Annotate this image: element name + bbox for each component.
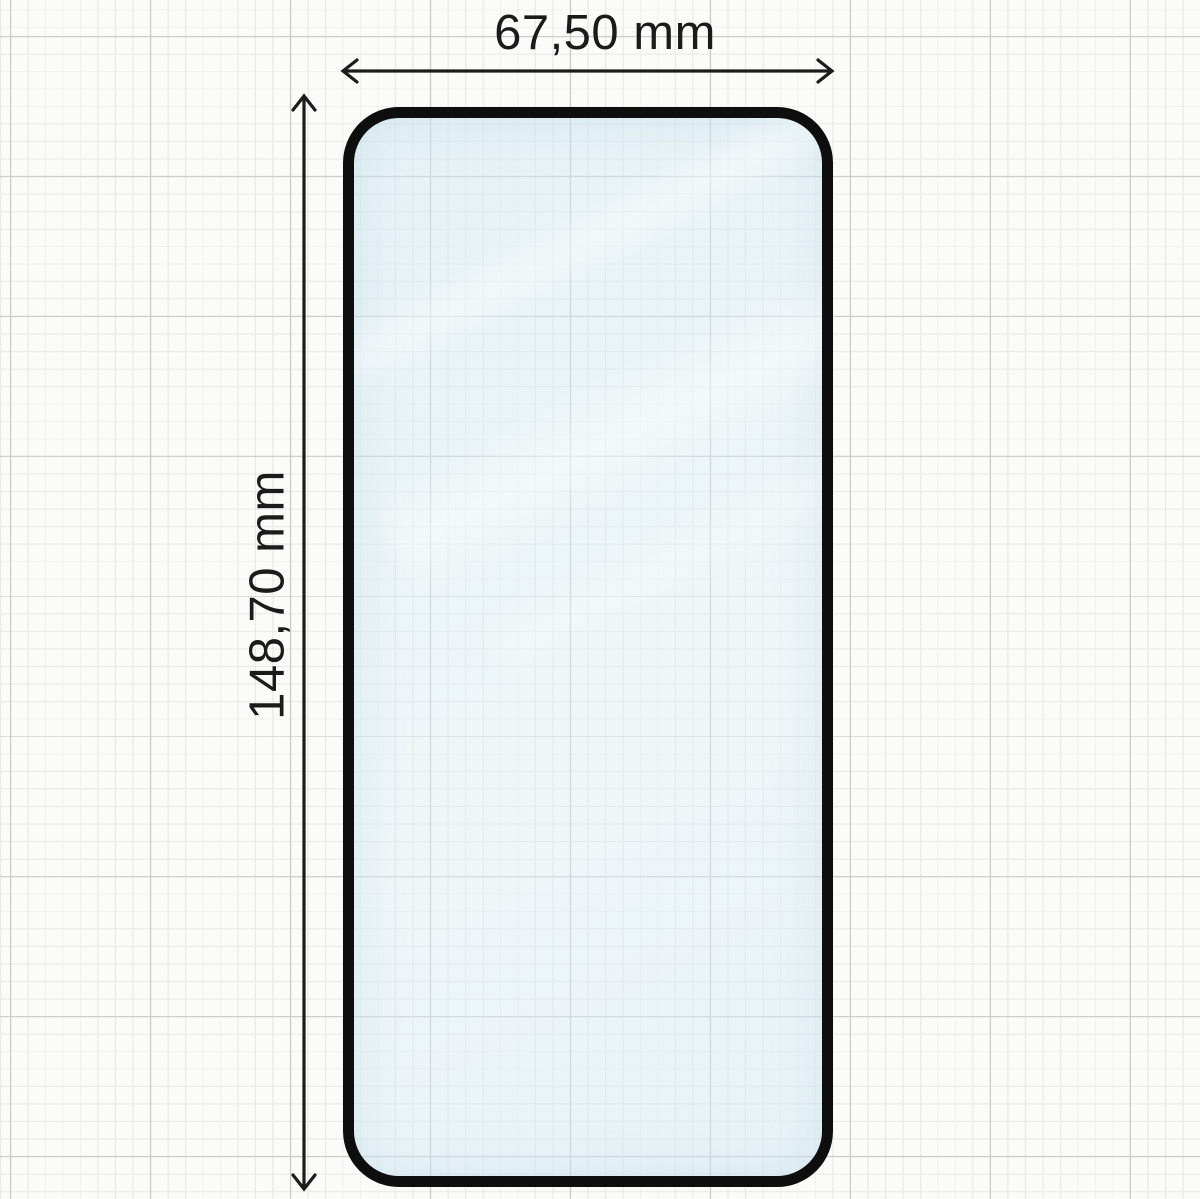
screen-protector-dimension-diagram: 67,50 mm 148,70 mm <box>0 0 1200 1199</box>
height-dimension-label: 148,70 mm <box>244 470 293 720</box>
screen-protector-glass <box>343 107 833 1187</box>
width-dimension-label: 67,50 mm <box>494 9 716 58</box>
